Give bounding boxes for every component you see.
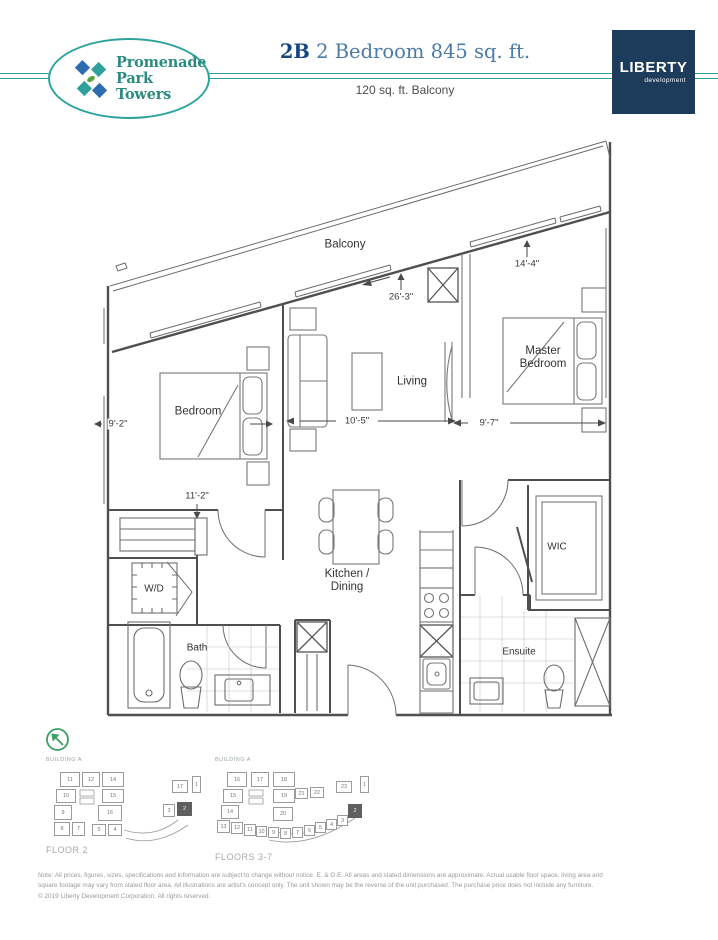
keyplan-unit-2: 2 — [177, 802, 192, 816]
room-label-wic: WIC — [547, 541, 566, 554]
keyplan-unit-3: 3 — [337, 815, 348, 826]
keyplan-unit-18: 18 — [273, 772, 295, 787]
keyplan-unit-20: 20 — [273, 807, 293, 821]
compass-north-icon — [44, 726, 71, 758]
keyplan-unit-16: 16 — [98, 805, 122, 821]
keyplan-unit-16: 16 — [227, 772, 247, 787]
disclaimer-line-1: Note: All prices, figures, sizes, specif… — [38, 871, 700, 881]
kitchen-line-2: Dining — [331, 581, 364, 593]
keyplan-unit-11: 11 — [60, 772, 80, 787]
room-label-wd: W/D — [144, 583, 163, 596]
dim-balcony-run: 26'-3" — [388, 292, 414, 303]
keyplan-unit-4: 4 — [326, 819, 337, 830]
room-label-bath: Bath — [187, 642, 208, 655]
keyplan-unit-1: 1 — [360, 776, 369, 793]
keyplan-floor2: 1112141015916875417132 — [46, 766, 206, 844]
keyplan-unit-14: 14 — [102, 772, 124, 787]
liberty-logo: LIBERTY development — [612, 30, 695, 114]
room-label-master-bedroom: Master Bedroom — [520, 345, 567, 371]
keyplan-unit-7: 7 — [292, 827, 303, 838]
page-title: 2B 2 Bedroom 845 sq. ft. — [230, 40, 580, 63]
keyplan-unit-11: 11 — [244, 824, 256, 836]
keyplan-unit-10: 10 — [256, 826, 267, 837]
keyplan-unit-8: 8 — [280, 828, 291, 839]
keyplan-unit-17: 17 — [251, 772, 269, 787]
page-subtitle: 120 sq. ft. Balcony — [230, 83, 580, 97]
unit-title: 2 Bedroom 845 sq. ft. — [310, 40, 530, 63]
keyplan-floors37: 1617181519142013121110987654321222321 — [215, 766, 395, 851]
dim-bedroom-length: 11'-2" — [184, 491, 210, 502]
keyplan-unit-4: 4 — [108, 824, 122, 836]
room-label-ensuite: Ensuite — [502, 646, 535, 659]
master-line-2: Bedroom — [520, 358, 567, 370]
disclaimer: Note: All prices, figures, sizes, specif… — [38, 871, 700, 902]
room-label-kitchen-dining: Kitchen / Dining — [325, 568, 370, 594]
keyplan-unit-23: 23 — [336, 781, 352, 793]
keyplan-unit-21: 21 — [295, 788, 308, 799]
keyplan-unit-19: 19 — [273, 789, 295, 803]
keyplan-floors37-label: FLOORS 3-7 — [215, 852, 273, 862]
room-label-balcony: Balcony — [325, 239, 366, 252]
keyplan-unit-5: 5 — [92, 824, 106, 836]
keyplan-unit-12: 12 — [82, 772, 100, 787]
promenade-logo-text: Promenade Park Towers — [116, 55, 208, 103]
disclaimer-line-2: square footage may vary from stated floo… — [38, 881, 700, 891]
kitchen-line-1: Kitchen / — [325, 568, 370, 580]
keyplan-unit-5: 5 — [315, 822, 326, 833]
keyplan-floor2-building: BUILDING A — [46, 757, 82, 763]
keyplan-unit-15: 15 — [223, 789, 243, 803]
dim-bedroom-width: 9'-2" — [108, 419, 129, 430]
keyplan-unit-1: 1 — [192, 776, 201, 793]
keyplan-unit-17: 17 — [172, 780, 188, 793]
keyplan-unit-14: 14 — [221, 805, 239, 819]
floorplan-sheet: Promenade Park Towers 2B 2 Bedroom 845 s… — [0, 0, 718, 940]
keyplan-unit-9: 9 — [54, 805, 72, 820]
dim-master-top: 14'-4" — [514, 259, 540, 270]
promenade-logo-icon — [72, 57, 110, 101]
room-label-bedroom: Bedroom — [175, 406, 222, 419]
logo-line-1: Promenade — [116, 55, 208, 71]
floorplan-drawing — [90, 130, 630, 730]
keyplan-unit-6: 6 — [304, 825, 315, 836]
keyplan-floor2-label: FLOOR 2 — [46, 845, 88, 855]
unit-code: 2B — [280, 40, 310, 63]
keyplan-unit-13: 13 — [217, 820, 230, 833]
keyplan-unit-15: 15 — [102, 789, 124, 803]
liberty-logo-sub: development — [612, 77, 695, 84]
dim-living-width: 10'-5" — [344, 416, 370, 427]
keyplan-unit-8: 8 — [54, 822, 70, 836]
keyplan-unit-2: 2 — [348, 804, 362, 818]
room-label-living: Living — [397, 376, 427, 389]
keyplan-unit-12: 12 — [231, 822, 243, 834]
dim-master-width: 9'-7" — [479, 418, 500, 429]
liberty-logo-name: LIBERTY — [612, 61, 695, 75]
promenade-logo: Promenade Park Towers — [48, 38, 210, 119]
keyplan-unit-3: 3 — [163, 804, 175, 817]
master-line-1: Master — [525, 345, 560, 357]
floorplan: Balcony Bedroom Living Master Bedroom Ki… — [90, 130, 630, 730]
keyplan-floors37-building: BUILDING A — [215, 757, 251, 763]
logo-line-2: Park Towers — [116, 71, 208, 103]
copyright: © 2019 Liberty Development Corporation. … — [38, 892, 700, 902]
keyplan-unit-9: 9 — [268, 827, 279, 838]
keyplan-unit-22: 22 — [310, 787, 324, 798]
keyplan-unit-7: 7 — [72, 822, 85, 836]
keyplan-unit-10: 10 — [56, 789, 76, 803]
